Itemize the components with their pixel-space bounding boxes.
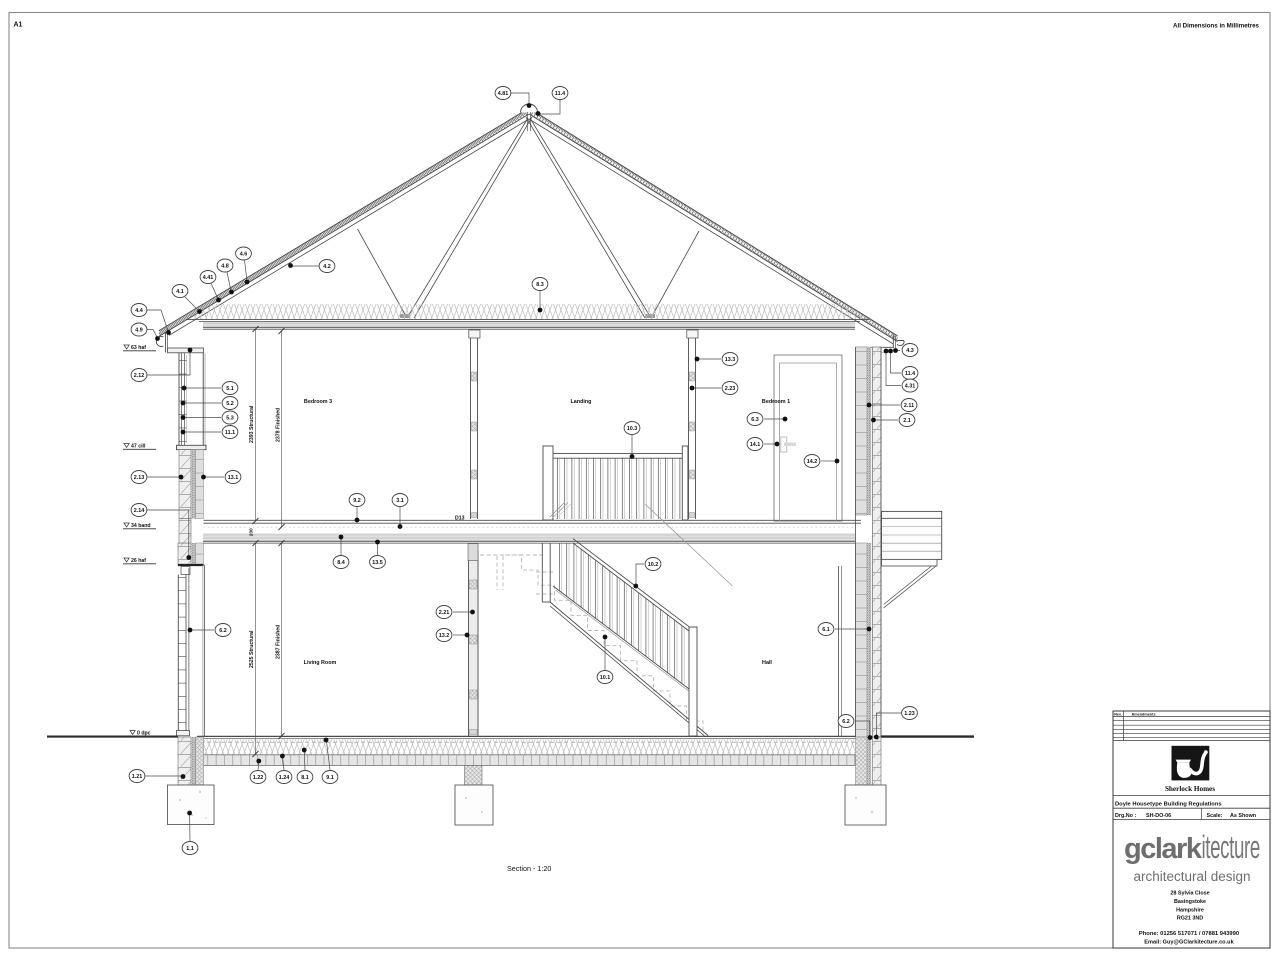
svg-text:6.2: 6.2 bbox=[219, 628, 227, 634]
svg-text:2.11: 2.11 bbox=[904, 403, 914, 409]
svg-text:2.1: 2.1 bbox=[903, 418, 911, 424]
svg-text:Hampshire: Hampshire bbox=[1176, 908, 1204, 914]
svg-text:13.1: 13.1 bbox=[228, 475, 239, 481]
svg-text:Living Room: Living Room bbox=[304, 660, 337, 666]
svg-text:2387 Finished: 2387 Finished bbox=[276, 625, 282, 659]
svg-text:2.13: 2.13 bbox=[134, 475, 145, 481]
svg-text:10.2: 10.2 bbox=[648, 562, 659, 568]
svg-text:5.1: 5.1 bbox=[226, 386, 234, 392]
svg-text:10.3: 10.3 bbox=[627, 426, 638, 432]
svg-text:26 haf: 26 haf bbox=[131, 558, 146, 564]
svg-text:4.3: 4.3 bbox=[906, 348, 914, 354]
svg-text:4.2: 4.2 bbox=[323, 264, 331, 270]
svg-text:4.31: 4.31 bbox=[905, 383, 916, 389]
svg-text:Rev.: Rev. bbox=[1114, 713, 1122, 717]
svg-text:63 haf: 63 haf bbox=[131, 345, 146, 351]
svg-text:9.1: 9.1 bbox=[326, 775, 334, 781]
svg-text:Email: Guy@GClarkitecture.co.u: Email: Guy@GClarkitecture.co.uk bbox=[1144, 940, 1234, 946]
svg-text:4.8: 4.8 bbox=[221, 263, 229, 269]
svg-text:3.1: 3.1 bbox=[396, 498, 404, 504]
svg-text:A1: A1 bbox=[14, 22, 23, 29]
svg-text:8.4: 8.4 bbox=[337, 560, 345, 566]
svg-text:Bedroom 1: Bedroom 1 bbox=[762, 399, 790, 405]
svg-text:Hall: Hall bbox=[762, 660, 772, 666]
svg-text:4.6: 4.6 bbox=[240, 251, 248, 257]
svg-text:2.14: 2.14 bbox=[134, 508, 145, 514]
svg-text:RG21 3ND: RG21 3ND bbox=[1177, 916, 1203, 922]
svg-text:13.2: 13.2 bbox=[439, 633, 450, 639]
svg-text:Amendments: Amendments bbox=[1132, 713, 1156, 717]
svg-text:Drg.No :: Drg.No : bbox=[1115, 813, 1136, 819]
svg-text:230: 230 bbox=[249, 528, 254, 536]
svg-text:8.1: 8.1 bbox=[301, 775, 309, 781]
svg-text:47 cill: 47 cill bbox=[131, 444, 146, 450]
svg-text:2393 Structural: 2393 Structural bbox=[249, 405, 255, 443]
svg-text:11.4: 11.4 bbox=[555, 91, 565, 97]
svg-text:Bedroom 3: Bedroom 3 bbox=[304, 399, 332, 405]
svg-text:architectural design: architectural design bbox=[1133, 869, 1250, 884]
svg-text:13.5: 13.5 bbox=[372, 560, 383, 566]
svg-text:34 band: 34 band bbox=[131, 523, 151, 529]
svg-text:2.23: 2.23 bbox=[725, 386, 736, 392]
svg-text:As Shown: As Shown bbox=[1230, 813, 1256, 819]
svg-text:6.3: 6.3 bbox=[751, 417, 759, 423]
svg-text:Phone: 01256 517071 / 07881 94: Phone: 01256 517071 / 07881 943990 bbox=[1139, 931, 1239, 937]
svg-text:itecture: itecture bbox=[1202, 829, 1260, 866]
svg-text:5.2: 5.2 bbox=[226, 401, 234, 407]
svg-text:6.2: 6.2 bbox=[842, 719, 850, 725]
svg-text:28 Sylvia Close: 28 Sylvia Close bbox=[1170, 891, 1209, 897]
svg-text:1.24: 1.24 bbox=[279, 775, 290, 781]
svg-text:All Dimensions in Millimetres: All Dimensions in Millimetres bbox=[1173, 23, 1260, 30]
svg-text:Scale:: Scale: bbox=[1207, 813, 1223, 819]
svg-text:13.3: 13.3 bbox=[725, 357, 736, 363]
svg-text:4.81: 4.81 bbox=[498, 91, 509, 97]
svg-text:D13: D13 bbox=[455, 516, 465, 522]
svg-text:Section - 1:20: Section - 1:20 bbox=[507, 864, 551, 873]
svg-text:2.12: 2.12 bbox=[134, 373, 145, 379]
svg-text:14.2: 14.2 bbox=[807, 459, 818, 465]
svg-text:5.3: 5.3 bbox=[226, 415, 234, 421]
svg-text:11.1: 11.1 bbox=[225, 430, 235, 436]
svg-text:1.21: 1.21 bbox=[132, 774, 143, 780]
svg-text:1.23: 1.23 bbox=[904, 711, 915, 717]
svg-text:4.1: 4.1 bbox=[176, 289, 184, 295]
svg-text:SH-DO-06: SH-DO-06 bbox=[1146, 813, 1171, 819]
svg-text:Sherlock Homes: Sherlock Homes bbox=[1165, 785, 1215, 793]
svg-text:1.1: 1.1 bbox=[186, 846, 194, 852]
svg-text:9.2: 9.2 bbox=[353, 498, 361, 504]
svg-text:8.3: 8.3 bbox=[536, 282, 544, 288]
svg-text:10.1: 10.1 bbox=[600, 675, 611, 681]
svg-text:0 dpc: 0 dpc bbox=[137, 731, 151, 737]
svg-text:2.21: 2.21 bbox=[439, 610, 450, 616]
svg-text:Basingstoke: Basingstoke bbox=[1174, 899, 1206, 905]
svg-text:11.4: 11.4 bbox=[905, 371, 915, 377]
svg-text:6.1: 6.1 bbox=[822, 627, 830, 633]
svg-text:4.4: 4.4 bbox=[135, 308, 143, 314]
svg-text:4.41: 4.41 bbox=[203, 275, 214, 281]
svg-text:4.9: 4.9 bbox=[135, 327, 143, 333]
svg-text:Doyle Housetype Building Regul: Doyle Housetype Building Regulations bbox=[1115, 802, 1222, 808]
svg-text:1.22: 1.22 bbox=[253, 775, 264, 781]
svg-text:2378 Finished: 2378 Finished bbox=[276, 408, 282, 442]
svg-text:Landing: Landing bbox=[571, 399, 592, 405]
svg-text:14.1: 14.1 bbox=[750, 442, 761, 448]
svg-text:2525 Structural: 2525 Structural bbox=[249, 630, 255, 668]
svg-text:gclark: gclark bbox=[1124, 833, 1203, 865]
